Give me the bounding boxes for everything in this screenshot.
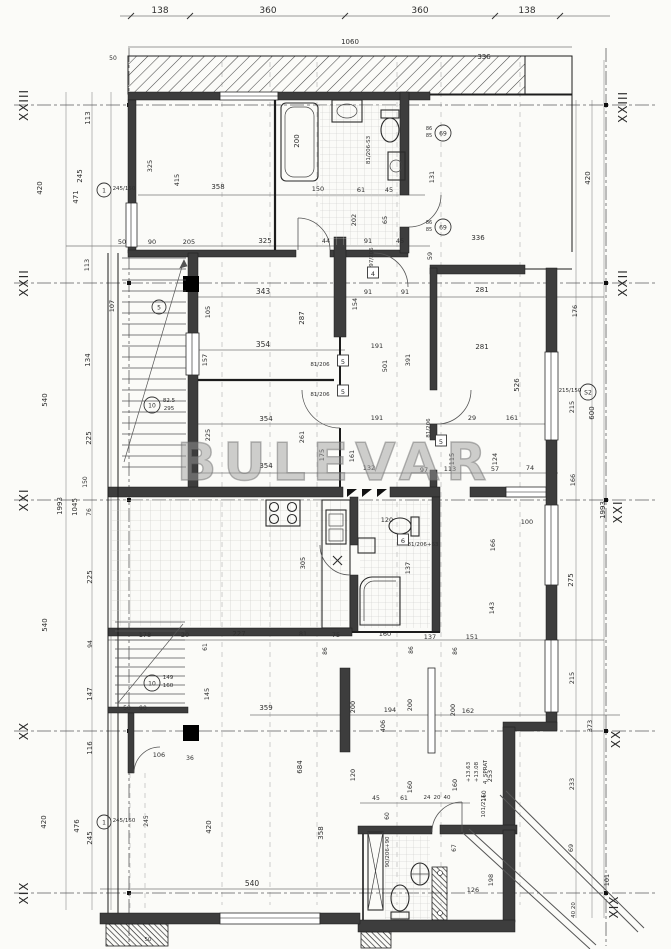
dim-label: 81/206+63 <box>408 542 439 548</box>
dim-label: 151 <box>466 633 478 641</box>
axis-label: XXII <box>616 269 630 297</box>
dim-label: 336 <box>477 53 491 61</box>
dim-label: 191 <box>371 414 383 422</box>
dim-label: 215/150 <box>559 388 582 394</box>
dim-label: 50 <box>145 937 152 943</box>
dim-label: 61 <box>202 643 209 651</box>
axis-label: XX <box>17 722 31 740</box>
dim-label: 138 <box>518 6 535 16</box>
axis-label: XIX <box>607 896 621 919</box>
circle-mark-label: 69 <box>439 130 447 137</box>
dim-label: 81/206 <box>310 392 330 398</box>
watermark: BULEVAR <box>177 433 494 493</box>
axis-label: XXIII <box>616 91 630 123</box>
dim-label: 150 <box>82 476 89 488</box>
dim-label: 253 <box>486 770 494 782</box>
dim-label: 1060 <box>341 38 359 46</box>
dim-label: 415 <box>173 174 181 186</box>
axis-label: XX <box>609 730 623 748</box>
dim-label: 161 <box>506 414 518 422</box>
dim-label: 336 <box>471 234 485 242</box>
dim-label: 200 <box>406 699 414 711</box>
axis-label: XXI <box>17 489 31 512</box>
dim-label: 86 <box>426 220 432 226</box>
dim-label: 540 <box>245 879 260 888</box>
dim-label: 200 <box>349 701 357 713</box>
dim-label: 160 <box>481 790 488 802</box>
dim-label: 275 <box>567 573 575 586</box>
dim-label: 200 <box>293 134 301 147</box>
dim-label: 354 <box>256 340 271 349</box>
dim-label: 1993 <box>56 497 64 515</box>
dim-label: 61 <box>400 795 408 802</box>
dim-label: 325 <box>146 160 154 172</box>
dim-label: 157 <box>201 354 209 366</box>
dim-label: 81/206 <box>310 362 330 368</box>
dim-label: 74 <box>526 464 534 472</box>
box-mark-label: 5 <box>341 358 345 366</box>
dim-label: 85 <box>426 133 432 139</box>
dim-label: 684 <box>296 760 304 774</box>
dim-label: 59 <box>426 252 434 260</box>
dim-label: 50 <box>123 705 131 712</box>
dim-label: 145 <box>203 688 211 700</box>
dim-label: 94 <box>87 640 94 648</box>
dim-label: 86 <box>426 126 432 132</box>
dim-label: 81 <box>299 630 307 638</box>
circle-mark-label: 5 <box>157 304 161 311</box>
dim-label: 86 <box>408 646 415 654</box>
dim-label: 86 <box>322 647 329 655</box>
dim-label: 420 <box>584 171 592 184</box>
dim-label: 600 <box>588 406 596 419</box>
dim-label: 358 <box>317 826 325 839</box>
dim-label: 126 <box>467 886 479 894</box>
circle-mark-label: 1 <box>102 187 106 194</box>
dim-label: 1045 <box>71 498 79 516</box>
dim-label: 160 <box>163 683 174 689</box>
dim-label: 154 <box>351 298 359 310</box>
dim-label: 245 <box>76 169 84 182</box>
axis-label: XXIII <box>17 89 31 121</box>
dim-label: 113 <box>84 111 92 124</box>
dim-label: 166 <box>489 539 497 551</box>
dim-label: 131 <box>428 171 436 183</box>
dim-label: 20 <box>434 795 441 801</box>
dim-label: 45 <box>385 186 393 194</box>
dim-label: 61 <box>357 186 365 194</box>
dim-label: 91 <box>401 288 409 296</box>
dim-label: 540 <box>41 618 49 631</box>
dim-label: 40 <box>444 795 451 801</box>
dim-label: 147 <box>86 687 94 700</box>
dim-label: 91 <box>364 237 372 245</box>
dim-label: 160 <box>379 630 391 638</box>
dim-label: 359 <box>259 704 272 712</box>
dim-label: 120 <box>349 769 357 781</box>
dim-label: 24 <box>424 795 431 801</box>
dim-label: 233 <box>568 778 576 790</box>
dim-label: 67 <box>451 844 458 852</box>
dim-label: 245/150 <box>113 818 136 824</box>
dim-label: 373 <box>586 720 594 732</box>
dim-label: 420 <box>36 181 44 194</box>
dim-label: 202 <box>350 214 358 226</box>
dim-label: 40 20 <box>571 902 577 918</box>
dim-label: 113 <box>83 259 91 271</box>
dim-label: 360 <box>411 6 428 16</box>
dim-label: 191 <box>371 342 383 350</box>
dim-label: 471 <box>72 190 80 203</box>
dim-label: 406 <box>379 720 387 732</box>
dim-label: 76 <box>86 508 93 516</box>
dim-label: 29 <box>468 414 476 422</box>
dim-label: 198 <box>487 874 495 886</box>
dim-label: 85 <box>426 227 432 233</box>
dim-label: 143 <box>488 602 496 614</box>
dim-label: +13.63 <box>466 761 472 782</box>
dim-label: 245 <box>143 815 150 827</box>
box-mark-label: 4 <box>371 270 375 278</box>
circle-mark-label: 10 <box>148 680 156 687</box>
tiled-floors <box>112 105 430 920</box>
dim-label: 100 <box>521 518 533 526</box>
dim-label: 354 <box>259 415 273 423</box>
dim-label: 200 <box>449 704 457 716</box>
dim-label: 20 <box>181 631 189 639</box>
dim-label: 245/150 <box>113 186 136 192</box>
dim-label: 90/206+90 <box>385 836 391 867</box>
dim-label: 420 <box>205 820 213 833</box>
dim-label: 281 <box>475 343 488 351</box>
dim-label: 75 <box>332 631 340 639</box>
dim-label: 501 <box>381 360 389 372</box>
dim-label: 205 <box>183 238 195 246</box>
dim-label: +13.08 <box>474 761 480 782</box>
dim-label: 225 <box>85 431 93 444</box>
dim-label: 360 <box>259 6 276 16</box>
dim-label: 50 <box>109 55 117 62</box>
dim-label: 44 <box>322 237 330 245</box>
dim-label: 69 <box>567 844 575 852</box>
dim-label: 107 <box>108 300 116 312</box>
dim-label: 343 <box>256 287 271 296</box>
dim-label: 476 <box>73 819 81 833</box>
floor-plan-page: XXIIIXXIIXXIXXXIXXXIIIXXIIXXIXXXIX138360… <box>0 0 671 949</box>
dim-label: 281 <box>475 286 488 294</box>
dim-label: 358 <box>211 183 224 191</box>
dim-label: 215 <box>568 672 576 684</box>
dim-label: 287 <box>298 311 306 324</box>
dim-label: 134 <box>84 353 92 367</box>
floorplan-canvas: XXIIIXXIIXXIXXXIXXXIIIXXIIXXIXXXIX138360… <box>0 0 671 949</box>
dim-label: 1993 <box>599 501 607 519</box>
dim-label: 82.5 <box>163 398 176 404</box>
dim-label: 36 <box>186 755 194 762</box>
dim-label: 215 <box>568 401 576 413</box>
dim-label: 90 <box>139 705 147 712</box>
circle-mark-label: 10 <box>148 402 156 409</box>
axis-label: XXI <box>611 501 625 524</box>
axis-label: XXII <box>17 269 31 297</box>
dim-label: 194 <box>384 706 396 714</box>
axis-label: XIX <box>17 882 31 905</box>
dim-label: 81/206-S3 <box>366 135 372 164</box>
dim-label: 325 <box>258 237 271 245</box>
dim-label: 225 <box>86 570 94 583</box>
dim-label: 162 <box>462 707 474 715</box>
dim-label: 45 <box>396 237 404 245</box>
dim-label: 45 <box>372 795 380 802</box>
dim-label: 116 <box>86 741 94 755</box>
circle-mark-label: S2 <box>584 389 592 396</box>
dim-label: 138 <box>151 6 168 16</box>
dim-label: 166 <box>569 474 577 486</box>
dim-label: 50 <box>118 238 126 246</box>
dim-label: 97/206 <box>369 247 375 267</box>
dim-label: 137 <box>404 562 412 574</box>
dim-label: 540 <box>41 393 49 406</box>
dim-label: 160 <box>451 779 459 791</box>
dim-label: 120 <box>381 516 393 524</box>
box-mark-label: 6 <box>401 537 405 545</box>
circle-mark-label: 1 <box>102 819 106 826</box>
dim-label: 60 <box>384 812 391 820</box>
dim-label: 305 <box>299 557 307 569</box>
dim-label: 526 <box>513 378 521 392</box>
dim-label: 245 <box>86 831 94 844</box>
dim-label: 105 <box>204 306 212 318</box>
dim-label: 391 <box>404 354 412 366</box>
dim-label: 160 <box>406 781 414 793</box>
dim-label: 150 <box>312 185 324 193</box>
dim-label: 178 <box>139 631 151 639</box>
dim-label: 137 <box>424 633 436 641</box>
circle-mark-label: 69 <box>439 224 447 231</box>
dim-label: 295 <box>164 406 175 412</box>
dim-label: 86 <box>452 647 459 655</box>
dim-label: 227 <box>232 630 245 638</box>
dim-label: 420 <box>40 815 48 828</box>
dim-label: 176 <box>571 305 579 317</box>
dim-label: 106 <box>153 751 165 759</box>
dim-label: 149 <box>163 675 174 681</box>
dim-label: 90 <box>148 238 156 246</box>
dim-label: 65 <box>381 216 389 224</box>
dim-label: 91 <box>364 288 372 296</box>
box-mark-label: 5 <box>341 388 345 396</box>
dim-label: 101 <box>603 874 611 886</box>
